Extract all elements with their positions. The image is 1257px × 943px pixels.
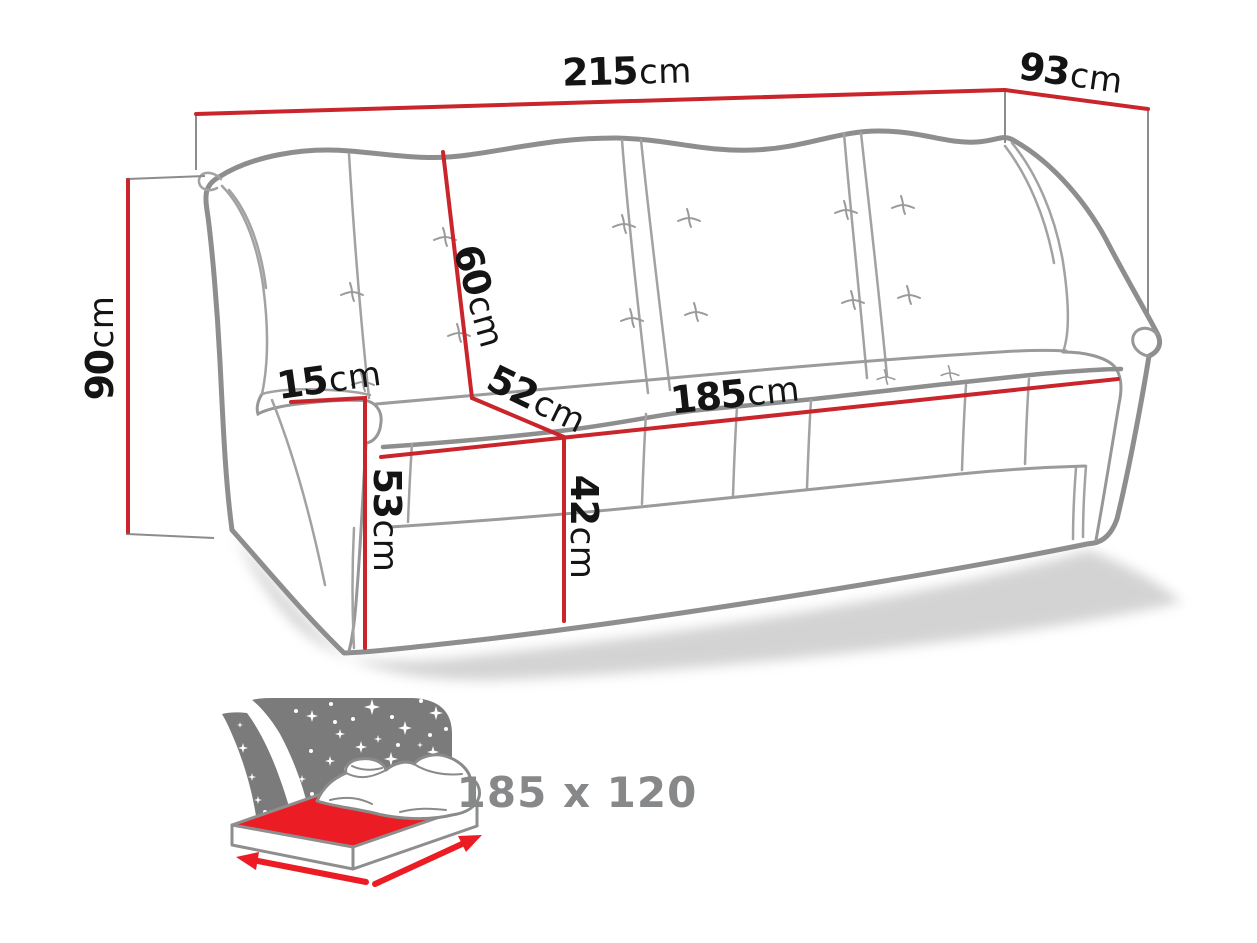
dim-unit: cm [745,369,802,414]
dim-value: 90 [78,350,122,400]
dim-value: 42 [562,475,606,525]
dim-unit: cm [562,527,602,580]
sofa-dimensions-diagram: 215cm 93cm 90cm 60cm 52cm 15cm 185cm 53c… [0,0,1257,943]
dim-value: 185 [668,371,747,423]
dim-unit: cm [326,354,384,401]
dim-label-total-height: 90cm [81,296,119,401]
dim-label-total-width: 215cm [562,50,693,92]
sleeping-area-size-label: 185 x 120 [457,772,698,814]
dim-unit: cm [1067,55,1125,102]
dim-value: 215 [562,49,638,95]
sleeping-function-bed-icon [222,697,482,884]
dim-unit: cm [365,520,405,573]
dim-value: 15 [274,358,330,409]
dim-label-armrest-height: 53cm [368,468,406,573]
dim-unit: cm [82,296,122,349]
dim-value: 93 [1016,44,1072,95]
dim-value: 53 [365,468,409,518]
dim-label-seat-height: 42cm [565,475,603,580]
dim-unit: cm [638,51,692,92]
